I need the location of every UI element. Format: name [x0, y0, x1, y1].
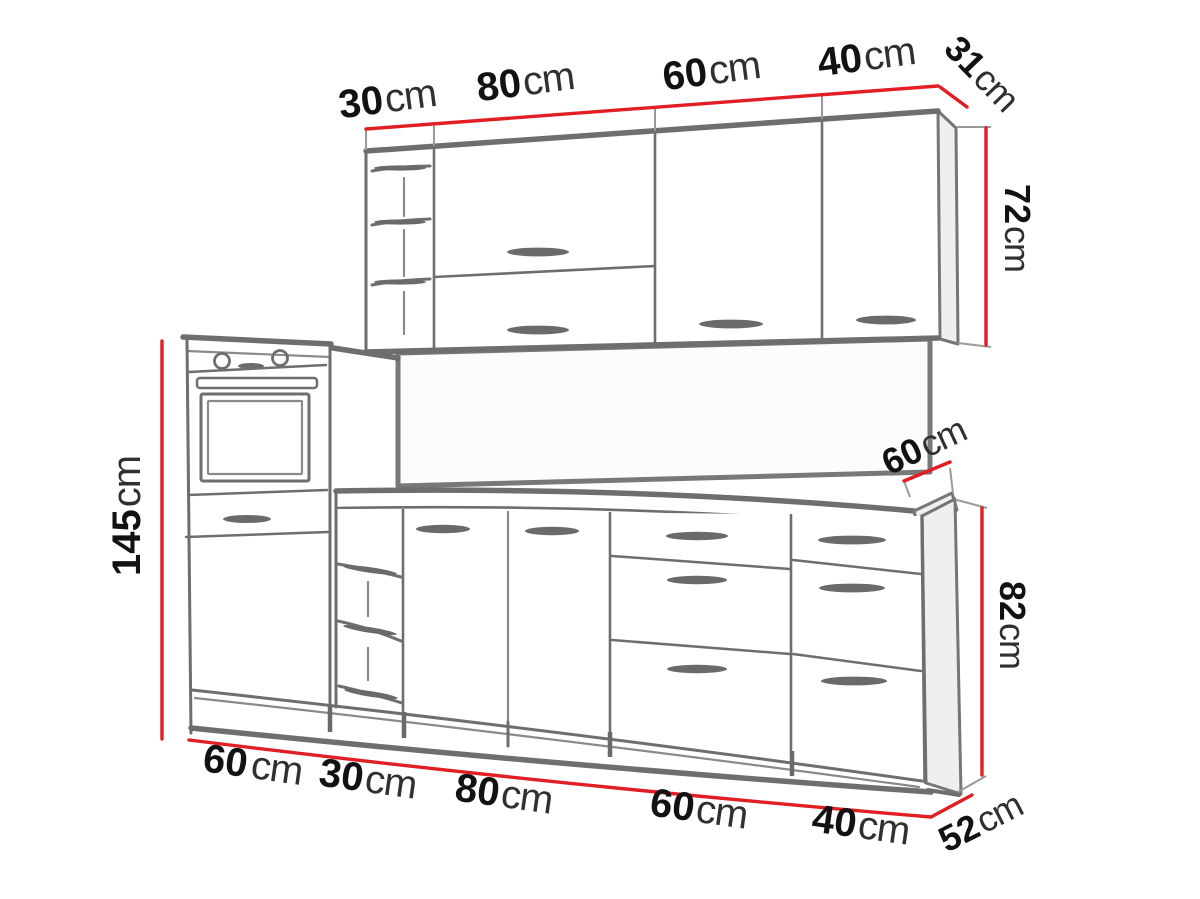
- label-base-80cm: 80cm: [452, 766, 555, 823]
- label-tall-height-145cm: 145cm: [105, 456, 149, 576]
- base-80-right-door-handle: [525, 527, 579, 535]
- label-upper-depth-31cm: 31cm: [937, 27, 1028, 119]
- backsplash-panel: [398, 339, 930, 486]
- upper-depth-dimension-line: [940, 87, 967, 107]
- oven-drawer-handle: [223, 515, 271, 523]
- label-upper-60cm: 60cm: [660, 43, 763, 99]
- upper-cabinets-side-panel: [938, 111, 958, 344]
- label-base-depth-52cm: 52cm: [932, 784, 1029, 861]
- base-80-left-door-handle: [416, 525, 470, 533]
- label-upper-30cm: 30cm: [336, 71, 439, 127]
- worktop-depth-tick-2: [950, 468, 953, 493]
- label-upper-40cm: 40cm: [815, 29, 918, 85]
- upper-60-door-handle: [699, 320, 763, 329]
- label-upper-80cm: 80cm: [474, 54, 577, 110]
- label-upper-height-72cm: 72cm: [997, 184, 1038, 272]
- upper-80-bottom-door-handle: [507, 326, 569, 335]
- label-base-40cm: 40cm: [809, 797, 912, 854]
- worktop-depth-tick-1: [904, 481, 910, 497]
- diagram-canvas: 30cm 80cm 60cm 40cm 31cm 72cm 145cm 60cm…: [0, 0, 1200, 899]
- upper-40-door-handle: [856, 316, 916, 325]
- kitchen-dimension-diagram: 30cm 80cm 60cm 40cm 31cm 72cm 145cm 60cm…: [0, 0, 1200, 899]
- label-base-60cm-2: 60cm: [647, 781, 750, 838]
- label-base-30cm: 30cm: [316, 751, 419, 808]
- label-base-height-82cm: 82cm: [992, 581, 1033, 669]
- base-side-panel: [922, 499, 961, 794]
- label-base-60cm: 60cm: [200, 736, 305, 793]
- upper-80-top-door-handle: [507, 248, 569, 257]
